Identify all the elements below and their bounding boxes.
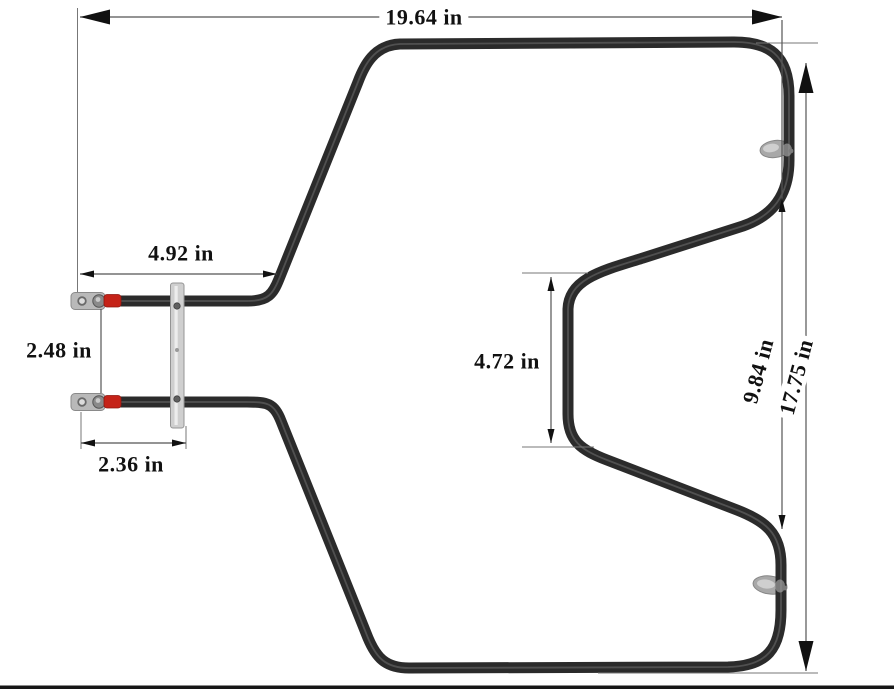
- product-dimension-image: 19.64 in 17.75 in 9.84 in 4.92 in 2.48 i…: [0, 0, 894, 696]
- terminal-hole: [78, 398, 86, 406]
- terminal-bottom: [71, 394, 121, 411]
- wire-sleeve: [104, 295, 121, 308]
- dimension-label-terminal-reach: 4.92 in: [142, 241, 220, 264]
- arrowheads: [80, 10, 814, 672]
- bottom-border-line: [0, 686, 894, 690]
- arrowhead-down: [779, 515, 786, 529]
- bracket-screw: [174, 303, 180, 309]
- arrowhead-right: [752, 10, 782, 25]
- bracket-screw: [174, 396, 180, 402]
- wire-sleeve: [104, 396, 121, 409]
- heating-element-tube: [117, 42, 789, 668]
- dimension-label-terminal-to-bracket: 2.36 in: [92, 452, 170, 475]
- terminal-hole: [78, 297, 86, 305]
- arrowhead-left: [81, 440, 95, 447]
- arrowhead-right: [172, 440, 186, 447]
- arrowhead-left: [80, 10, 110, 25]
- arrowhead-left: [80, 271, 94, 278]
- extension-lines: [78, 8, 819, 673]
- arrowhead-down: [548, 429, 555, 443]
- dimension-lines: [80, 17, 806, 671]
- tube-highlight: [117, 42, 789, 668]
- terminal-top: [71, 293, 121, 310]
- dimension-label-overall-width: 19.64 in: [379, 5, 468, 28]
- mounting-bracket: [171, 283, 185, 428]
- arrowhead-down: [799, 641, 814, 671]
- dimension-label-notch-height: 4.72 in: [468, 349, 546, 372]
- dimension-label-terminal-spacing: 2.48 in: [20, 338, 98, 361]
- arrowhead-up: [548, 277, 555, 291]
- arrowhead-up: [799, 63, 814, 93]
